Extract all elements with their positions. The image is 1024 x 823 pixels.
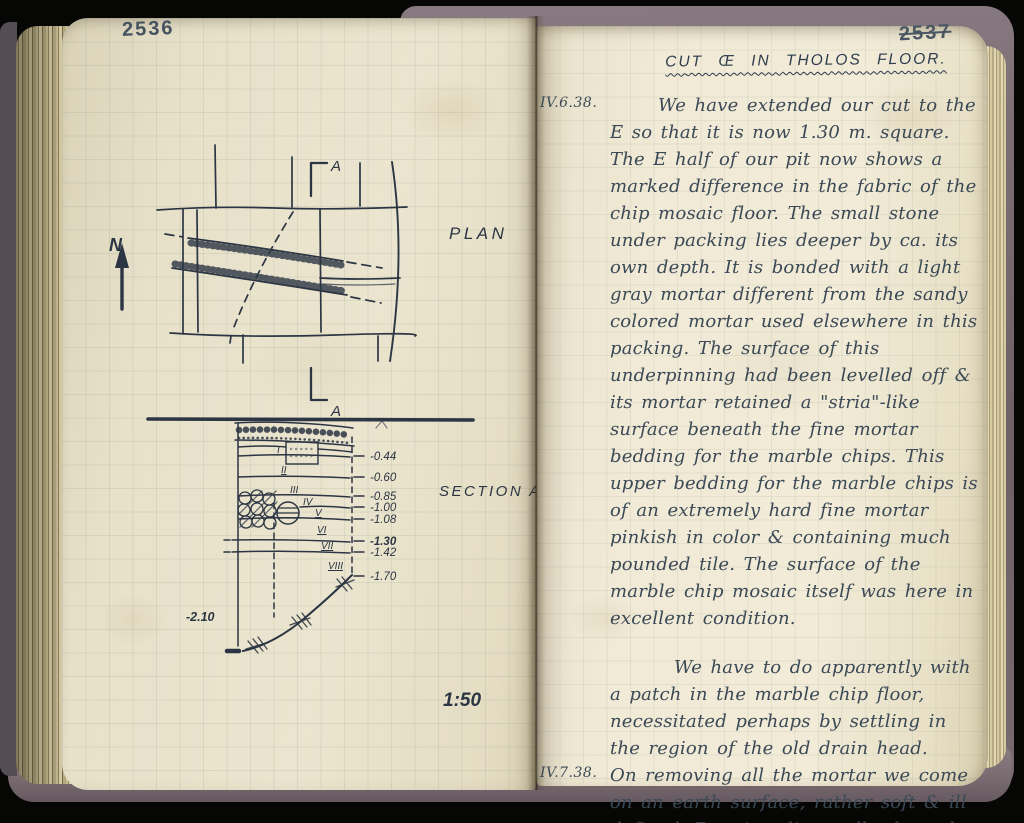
section-line-markers bbox=[311, 163, 327, 400]
north-label: N bbox=[109, 235, 123, 255]
layer-label: VII bbox=[321, 541, 333, 552]
layer-label: II bbox=[281, 465, 287, 476]
journal-title: CUT Œ IN THOLOS FLOOR. bbox=[636, 50, 976, 72]
plan-drawing: N A A PLAN bbox=[95, 135, 515, 425]
depth-label: -1.70 bbox=[370, 571, 397, 583]
layer-label: IV bbox=[303, 497, 314, 508]
notebook-photo: 2536 bbox=[0, 0, 1024, 823]
layer-label: III bbox=[290, 485, 299, 496]
bottom-depth-label: -2.10 bbox=[186, 610, 215, 624]
plan-linework bbox=[115, 145, 416, 400]
notebook-cover-left-edge bbox=[0, 22, 17, 776]
section-drawing: I II III IV V VI VII VIII -0.44 -0.60 -0… bbox=[140, 403, 560, 718]
journal-entry: IV.6.38. We have extended our cut to the… bbox=[540, 92, 988, 632]
depth-label: -0.60 bbox=[370, 472, 397, 484]
layer-label: VI bbox=[317, 525, 327, 536]
entry-date bbox=[540, 654, 610, 657]
left-page-number: 2536 bbox=[122, 17, 175, 42]
right-page-number: 2537 bbox=[898, 21, 952, 47]
scale-label: 1:50 bbox=[443, 690, 481, 711]
layer-label: VIII bbox=[328, 561, 343, 572]
plan-label: PLAN bbox=[449, 224, 507, 243]
entry-text: We have to do apparently with a patch in… bbox=[610, 654, 988, 762]
layer-label: V bbox=[315, 508, 323, 519]
entry-text: We have extended our cut to the E so tha… bbox=[610, 92, 988, 632]
depth-label: -1.00 bbox=[370, 502, 397, 514]
entry-date: IV.6.38. bbox=[540, 92, 610, 111]
entry-date: IV.7.38. bbox=[540, 762, 610, 781]
journal-entry: IV.7.38. On removing all the mortar we c… bbox=[540, 762, 988, 823]
left-page: 2536 bbox=[62, 18, 536, 790]
right-page: 2537 CUT Œ IN THOLOS FLOOR. IV.6.38. We … bbox=[536, 26, 988, 786]
entry-text: On removing all the mortar we come on an… bbox=[610, 762, 988, 823]
depth-label: -1.42 bbox=[370, 547, 397, 559]
drain-circle bbox=[277, 502, 299, 524]
journal-entries: IV.6.38. We have extended our cut to the… bbox=[540, 92, 988, 823]
layer-label: I bbox=[277, 445, 280, 456]
depth-label: -1.08 bbox=[370, 514, 397, 526]
journal-entry: We have to do apparently with a patch in… bbox=[540, 654, 988, 762]
depth-label: -0.44 bbox=[370, 451, 396, 463]
section-marker-a-top: A bbox=[330, 158, 341, 175]
